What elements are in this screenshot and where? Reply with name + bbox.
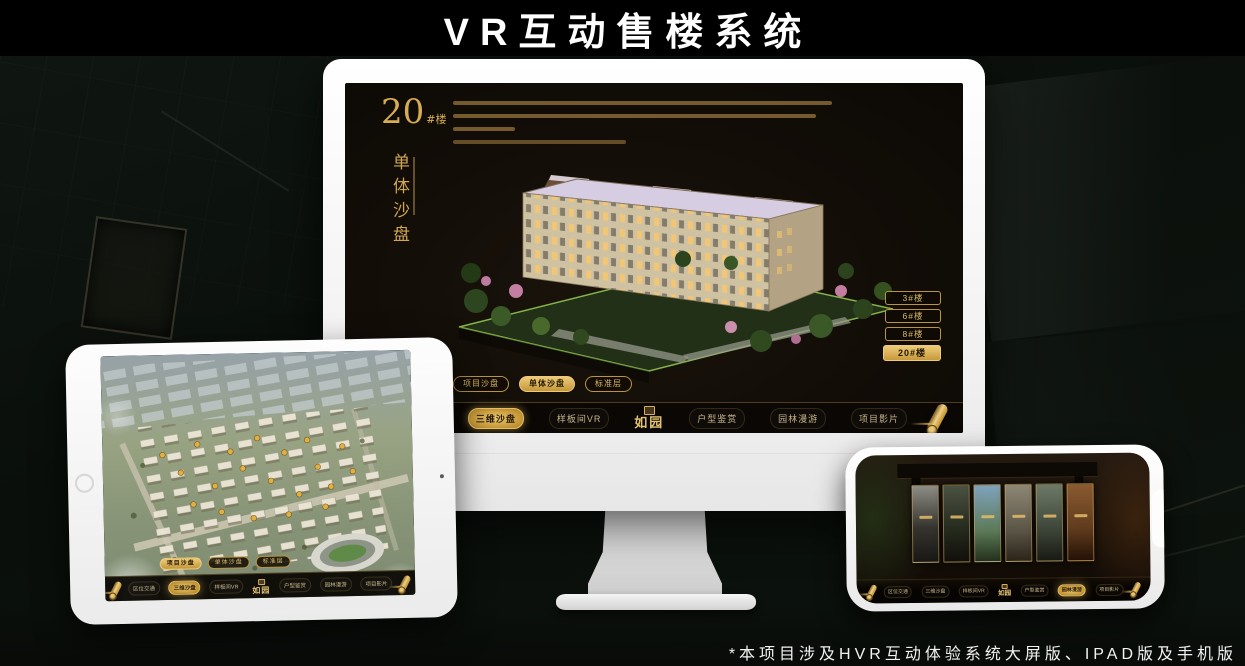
- nav-item-location[interactable]: 区位交通: [884, 585, 912, 597]
- nav-item-model-room-vr[interactable]: 样板间VR: [209, 579, 243, 594]
- menu-scroll-icon[interactable]: [926, 402, 950, 433]
- nav-item-project-film[interactable]: 项目影片: [360, 576, 392, 591]
- menu-scroll-icon[interactable]: [109, 580, 123, 598]
- home-button[interactable]: [75, 474, 94, 493]
- nav-item-garden-tour[interactable]: 园林漫游: [770, 408, 826, 429]
- building-heading: 20#楼: [381, 95, 446, 129]
- nav-item-model-room-vr[interactable]: 样板间VR: [959, 585, 989, 597]
- floor-selector: 3#楼 6#楼 8#楼 20#楼: [883, 291, 941, 361]
- page-title: VR互动售楼系统: [433, 1, 813, 56]
- floor-button-3[interactable]: 3#楼: [885, 291, 941, 305]
- sandbox-subtabs: 项目沙盘 单体沙盘 标准层: [453, 376, 632, 392]
- brand-logo: 如园: [998, 584, 1011, 597]
- monitor-stand-neck: [588, 508, 722, 596]
- scene-gallery: [912, 483, 1095, 563]
- floor-button-6[interactable]: 6#楼: [885, 309, 941, 323]
- building-number-suffix: #楼: [426, 113, 446, 126]
- vertical-caption-decoration: [413, 157, 415, 215]
- phone-mockup: 区位交通 三维沙盘 样板间VR 如园 户型鉴赏 园林漫游 项目影片: [845, 444, 1165, 611]
- camera-icon: [440, 474, 444, 478]
- phone-screen: 区位交通 三维沙盘 样板间VR 如园 户型鉴赏 园林漫游 项目影片: [855, 452, 1151, 603]
- tab-project-sandbox[interactable]: 项目沙盘: [453, 376, 509, 392]
- seal-icon: [644, 406, 655, 415]
- gallery-card[interactable]: [912, 485, 940, 563]
- gate-beam-silhouette: [897, 462, 1097, 478]
- nav-item-project-film[interactable]: 项目影片: [851, 408, 907, 429]
- tab-project-sandbox[interactable]: 项目沙盘: [160, 557, 202, 570]
- nav-item-location[interactable]: 区位交通: [128, 581, 160, 596]
- tablet-navbar: 区位交通 三维沙盘 样板间VR 如园 户型鉴赏 园林漫游 项目影片: [105, 570, 415, 601]
- monitor-stand-base: [556, 594, 756, 610]
- footnote-text: *本项目涉及HVR互动体验系统大屏版、IPAD版及手机版: [729, 640, 1237, 664]
- brand-logo: 如园: [634, 406, 664, 430]
- tab-single-sandbox[interactable]: 单体沙盘: [519, 376, 575, 392]
- gallery-card[interactable]: [943, 484, 971, 562]
- phone-notch: [1152, 489, 1165, 547]
- bg-photo-right: [961, 53, 1245, 341]
- panel-title-vertical: 单体沙盘: [387, 153, 412, 313]
- poster: VR互动售楼系统 20#楼 单体沙盘: [0, 0, 1245, 666]
- floor-button-20[interactable]: 20#楼: [883, 345, 941, 361]
- nav-item-sandbox-3d[interactable]: 三维沙盘: [921, 585, 949, 597]
- floor-button-8[interactable]: 8#楼: [885, 327, 941, 341]
- title-bar: VR互动售楼系统: [0, 0, 1245, 56]
- seal-icon: [258, 578, 265, 584]
- nav-item-floorplan[interactable]: 户型鉴赏: [689, 408, 745, 429]
- nav-item-project-film[interactable]: 项目影片: [1095, 583, 1123, 595]
- nav-item-garden-tour[interactable]: 园林漫游: [1058, 584, 1086, 596]
- nav-item-sandbox-3d[interactable]: 三维沙盘: [468, 408, 524, 429]
- nav-item-garden-tour[interactable]: 园林漫游: [320, 577, 352, 592]
- bg-map-grid: [0, 56, 330, 306]
- bg-road-line: [161, 110, 289, 191]
- tablet-screen: 项目沙盘 单体沙盘 标准层 区位交通 三维沙盘 样板间VR 如园 户型鉴赏 园林…: [100, 350, 415, 601]
- gallery-card[interactable]: [1036, 483, 1064, 561]
- nav-item-sandbox-3d[interactable]: 三维沙盘: [169, 580, 201, 595]
- phone-navbar: 区位交通 三维沙盘 样板间VR 如园 户型鉴赏 园林漫游 项目影片: [857, 576, 1151, 603]
- building-number: 20: [381, 92, 424, 132]
- gallery-card[interactable]: [974, 484, 1002, 562]
- nav-item-model-room-vr[interactable]: 样板间VR: [549, 408, 610, 429]
- tab-standard-floor[interactable]: 标准层: [585, 376, 632, 392]
- menu-scroll-icon[interactable]: [866, 584, 878, 600]
- nav-item-floorplan[interactable]: 户型鉴赏: [1020, 584, 1048, 596]
- building-3d-render: [431, 131, 931, 391]
- gallery-card[interactable]: [1067, 483, 1095, 561]
- menu-scroll-icon[interactable]: [398, 574, 412, 592]
- tab-standard-floor[interactable]: 标准层: [256, 555, 291, 568]
- gallery-card[interactable]: [1005, 484, 1033, 562]
- brand-logo: 如园: [252, 578, 270, 593]
- tablet-mockup: 项目沙盘 单体沙盘 标准层 区位交通 三维沙盘 样板间VR 如园 户型鉴赏 园林…: [65, 337, 458, 625]
- nav-item-floorplan[interactable]: 户型鉴赏: [279, 578, 311, 593]
- tab-single-sandbox[interactable]: 单体沙盘: [208, 556, 250, 569]
- bg-plaque-frame: [81, 216, 188, 340]
- menu-scroll-icon[interactable]: [1129, 581, 1141, 597]
